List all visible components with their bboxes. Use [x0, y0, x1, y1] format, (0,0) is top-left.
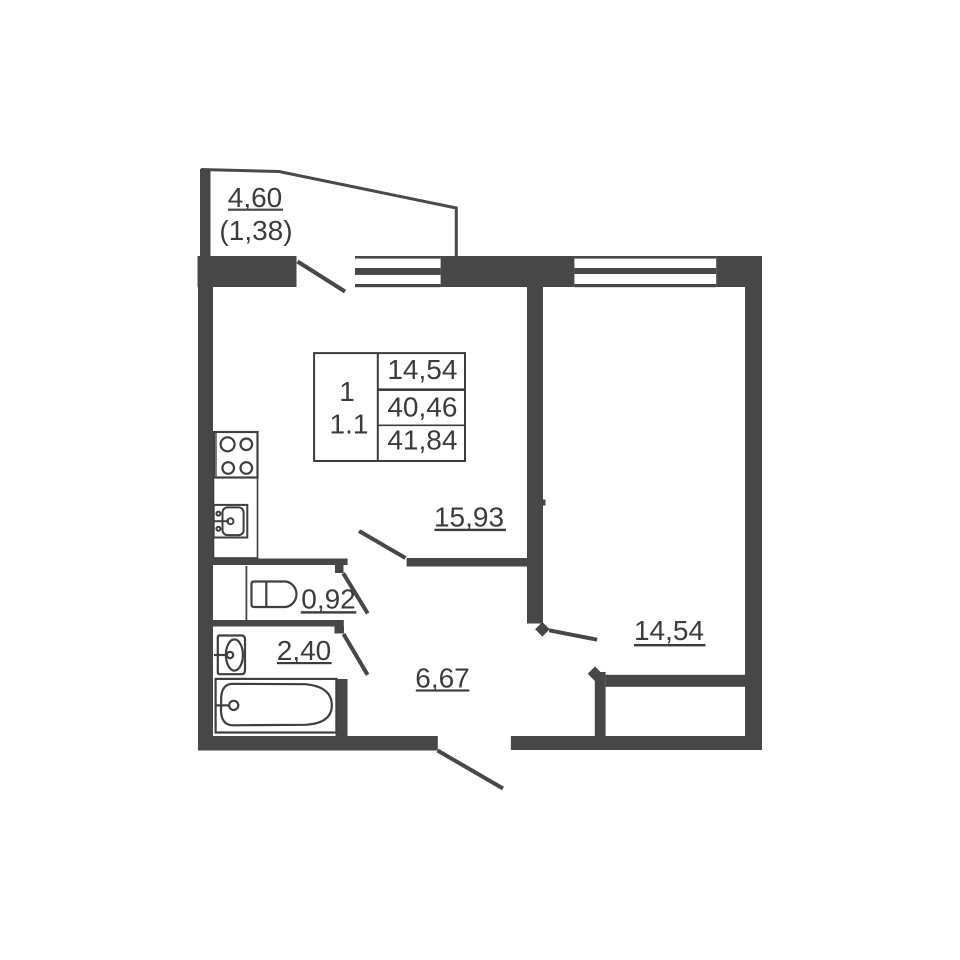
svg-text:6,67: 6,67 [415, 663, 470, 694]
svg-text:40,46: 40,46 [387, 392, 457, 423]
svg-text:0,92: 0,92 [301, 584, 356, 615]
svg-text:4,60: 4,60 [228, 182, 283, 213]
svg-text:15,93: 15,93 [434, 502, 504, 533]
svg-text:1: 1 [339, 376, 355, 407]
svg-text:1.1: 1.1 [330, 409, 369, 440]
svg-text:(1,38): (1,38) [219, 215, 292, 246]
svg-text:2,40: 2,40 [277, 635, 332, 666]
svg-text:41,84: 41,84 [387, 425, 457, 456]
svg-text:14,54: 14,54 [387, 354, 457, 385]
svg-text:14,54: 14,54 [634, 615, 704, 646]
